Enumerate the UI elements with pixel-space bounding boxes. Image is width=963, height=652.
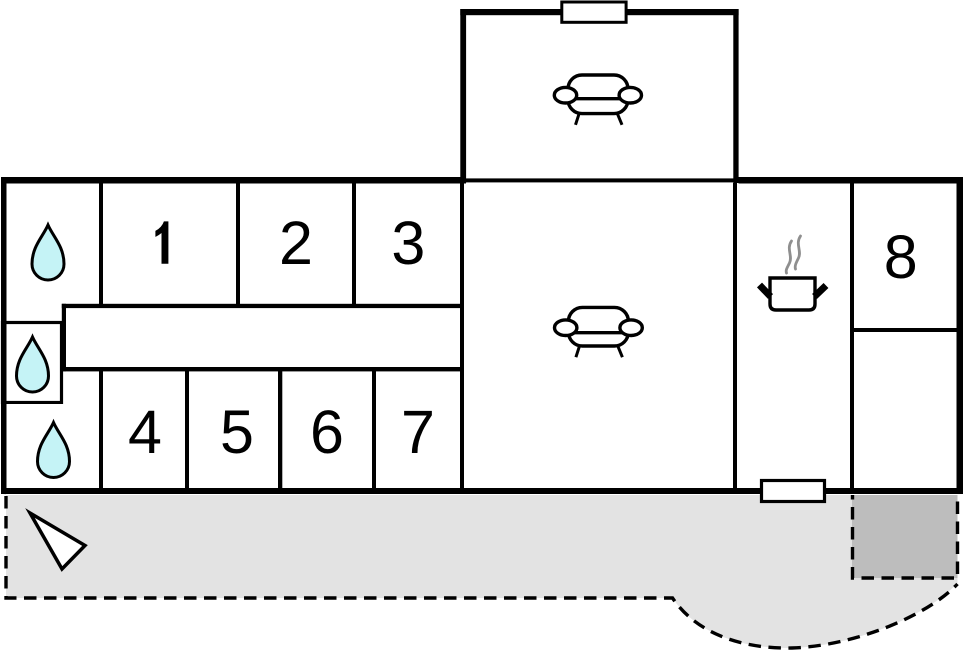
svg-text:3: 3	[391, 209, 425, 277]
svg-text:5: 5	[220, 398, 254, 466]
svg-text:8: 8	[884, 223, 918, 291]
svg-text:7: 7	[401, 398, 435, 466]
svg-text:2: 2	[279, 209, 313, 277]
svg-text:4: 4	[128, 398, 162, 466]
svg-text:6: 6	[310, 398, 344, 466]
